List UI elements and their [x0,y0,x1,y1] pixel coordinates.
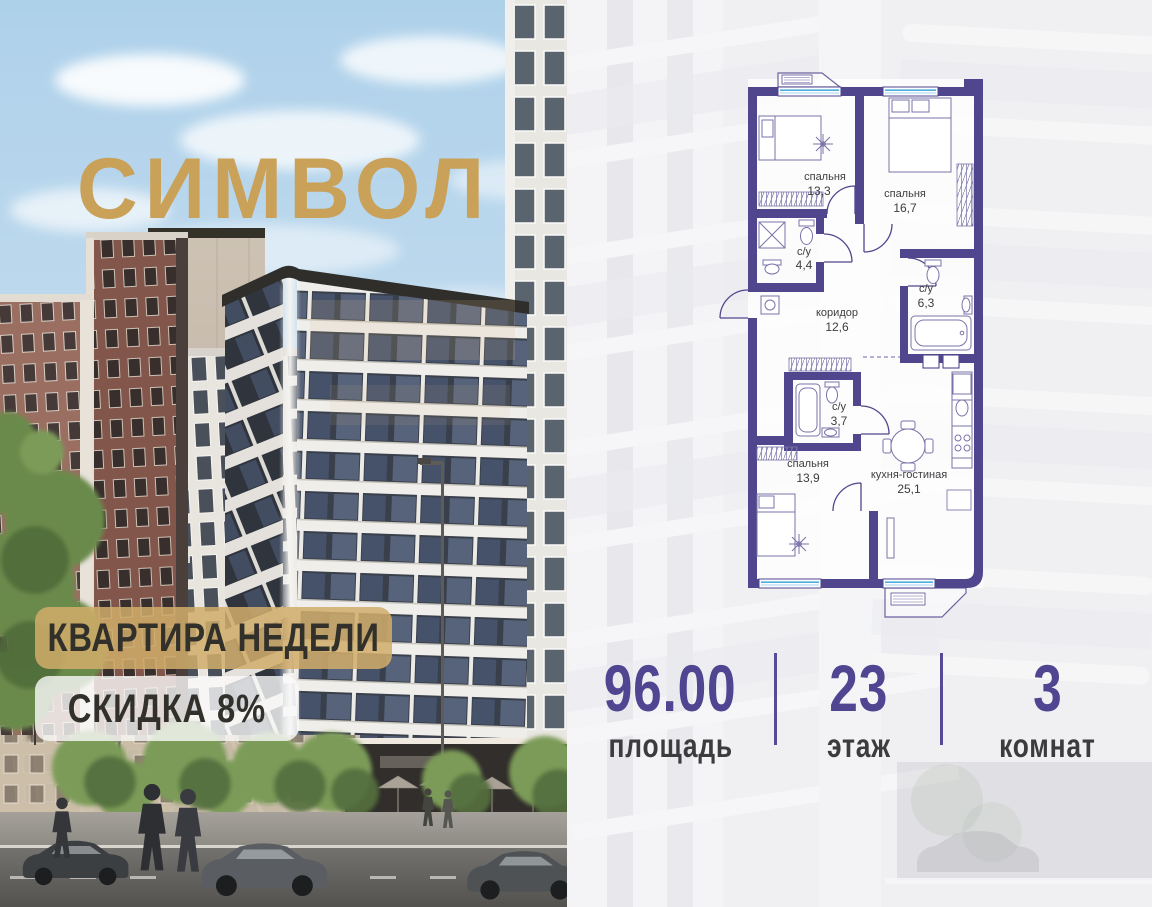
stat-rooms-label: комнат [999,729,1096,762]
stat-floor-value: 23 [829,655,888,721]
room-label-bathroom1: с/у [797,246,812,258]
room-area-bedroom2: 16,7 [893,201,917,215]
stat-rooms: 3 комнат [943,645,1152,760]
room-area-bathroom3: 3,7 [831,414,848,428]
chandelier-3 [789,534,809,554]
room-area-bathroom2: 6,3 [918,296,935,310]
room-area-corridor: 12,6 [825,320,849,334]
logo-text: СИМВОЛ [77,141,491,237]
stat-area: 96.00 площадь [567,645,774,760]
stat-area-value: 96.00 [604,655,737,721]
balcony-bottom [885,588,966,617]
stat-floor: 23 этаж [777,645,940,760]
logo: СИМВОЛ [33,146,535,232]
badge-apartment-of-week: КВАРТИРА НЕДЕЛИ [35,607,392,669]
window-bedroom2 [883,87,938,96]
room-label-corridor: коридор [816,307,858,319]
window-bedroom3 [759,579,821,588]
balcony-top [778,73,840,87]
chandelier-1 [813,134,833,154]
window-bedroom1 [778,87,841,96]
stat-floor-label: этаж [827,729,891,762]
room-label-bedroom1: спальня [804,171,846,183]
room-area-bathroom1: 4,4 [796,258,813,272]
badge-discount-label: СКИДКА 8% [68,689,266,729]
promo-banner: СИМВОЛ КВАРТИРА НЕДЕЛИ СКИДКА 8% [0,0,1152,907]
badge-apartment-of-week-label: КВАРТИРА НЕДЕЛИ [47,618,379,658]
room-label-bathroom2: с/у [919,283,934,295]
stat-area-label: площадь [608,729,732,762]
room-label-bathroom3: с/у [832,401,847,413]
building-photo [0,0,570,907]
room-label-bedroom3: спальня [787,458,829,470]
room-area-bedroom1: 13,3 [807,184,831,198]
room-label-bedroom2: спальня [884,188,926,200]
room-area-kitchen: 25,1 [897,482,921,496]
room-label-kitchen: кухня-гостиная [871,469,947,481]
badge-discount: СКИДКА 8% [35,676,299,741]
stat-rooms-value: 3 [1033,655,1062,721]
floor-plan: спальня 13,3 спальня 16,7 с/у 4,4 с/у 6,… [719,66,991,646]
apartment-stats: 96.00 площадь 23 этаж 3 комнат [567,645,1152,760]
info-panel: спальня 13,3 спальня 16,7 с/у 4,4 с/у 6,… [567,0,1152,907]
room-area-bedroom3: 13,9 [796,471,820,485]
window-kitchen [883,579,935,588]
